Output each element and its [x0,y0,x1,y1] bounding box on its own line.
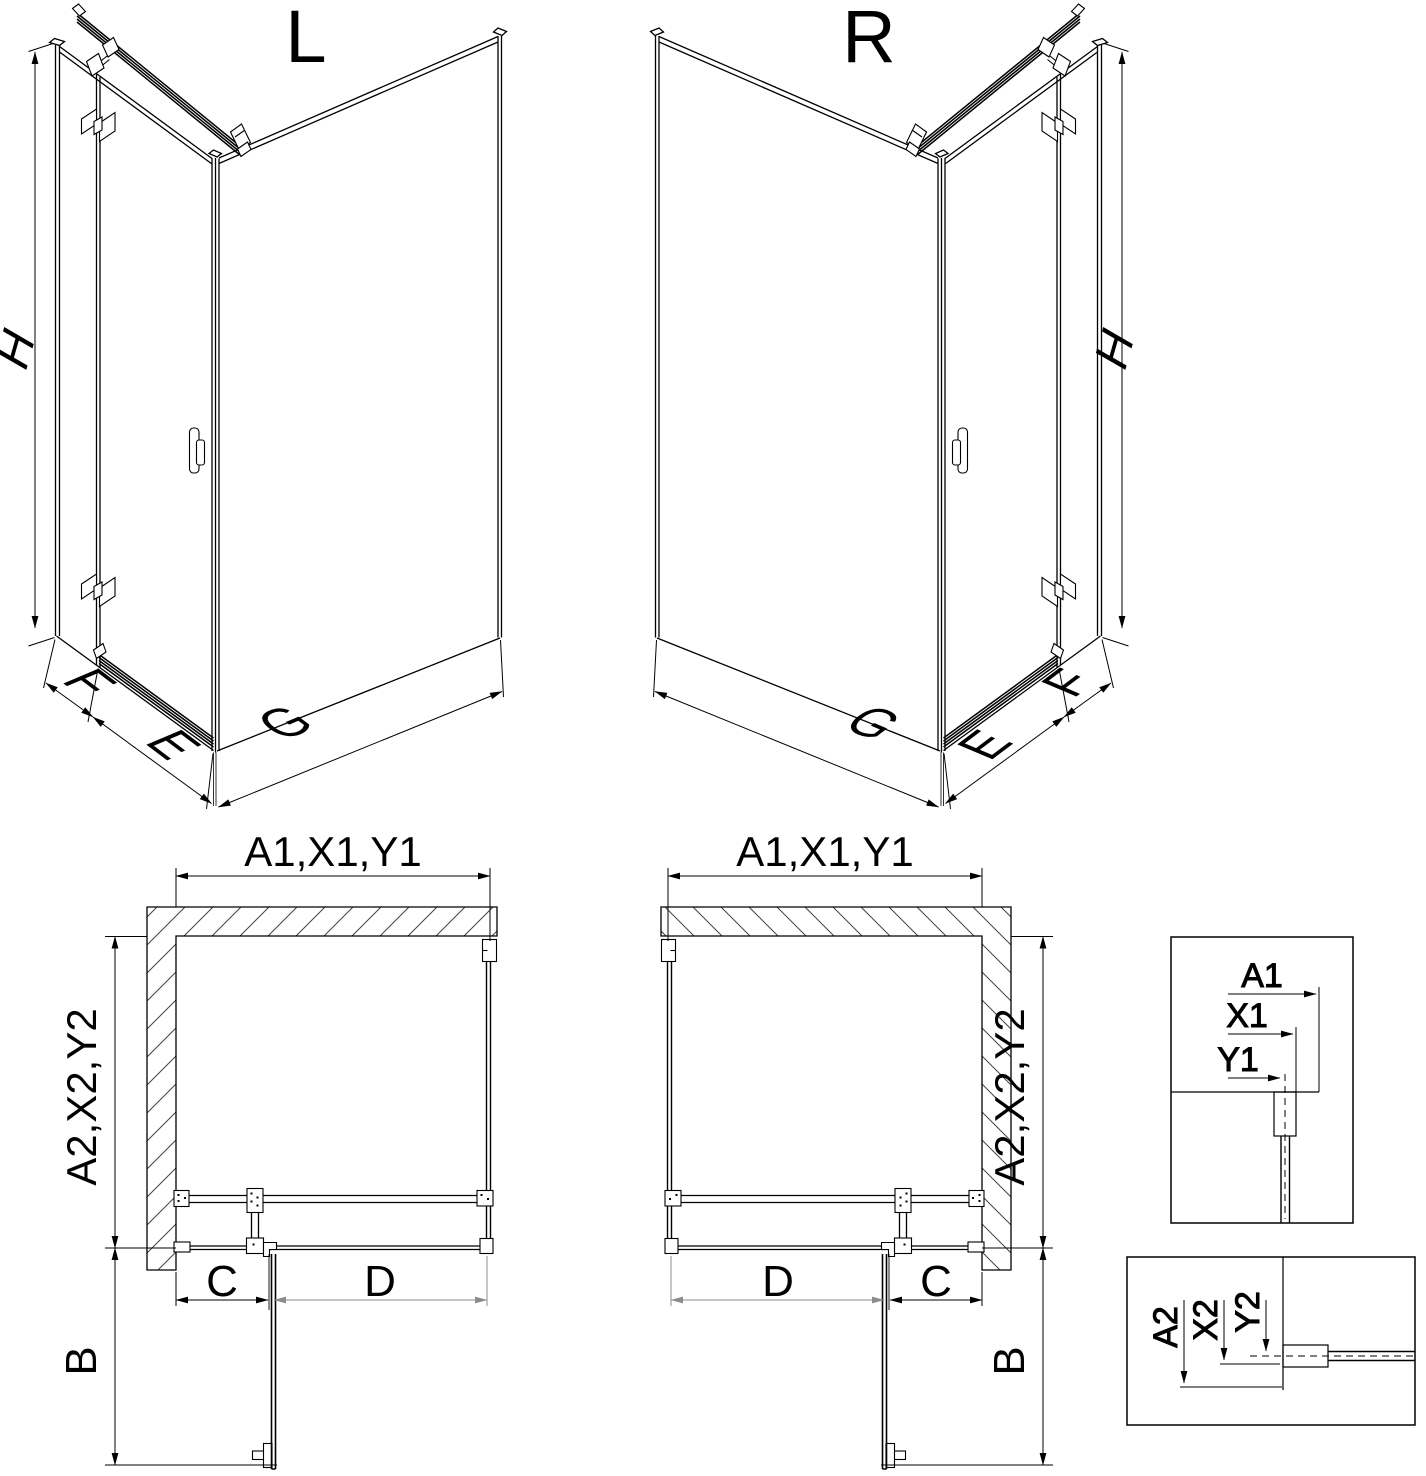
label-depth-dim-right: A2,X2,Y2 [986,1008,1033,1185]
technical-drawing: L H F E G R H G E F A1,X1,Y1 A2,X2,Y2 C … [0,0,1426,1476]
label-width-dim-left: A1,X1,Y1 [244,828,421,875]
plan-view-left: A1,X1,Y1 A2,X2,Y2 C D B [57,828,497,1469]
figure-iso-right: R H G E F [651,0,1144,809]
label-b-left: B [57,1346,106,1375]
detail-wall-profile-top: A1 X1 Y1 [1171,937,1353,1223]
label-g-right: G [831,696,915,748]
label-detail-x2: X2 [1187,1299,1225,1341]
drawing-sheet: L H F E G R H G E F A1,X1,Y1 A2,X2,Y2 C … [0,0,1426,1476]
label-d-left: D [364,1257,396,1306]
label-detail-x1: X1 [1226,997,1268,1035]
label-detail-a1: A1 [1241,957,1283,995]
label-depth-dim-left: A2,X2,Y2 [58,1008,105,1185]
label-height-left: H [0,319,44,380]
label-version-right: R [842,0,895,78]
label-c-right: C [920,1257,952,1306]
label-c-left: C [206,1257,238,1306]
label-g-left: G [243,696,327,748]
label-detail-y2: Y2 [1229,1291,1267,1333]
label-version-left: L [285,0,326,78]
label-width-dim-right: A1,X1,Y1 [736,828,913,875]
label-b-right: B [985,1346,1034,1375]
label-detail-y1: Y1 [1217,1041,1259,1079]
label-d-right: D [762,1257,794,1306]
figure-iso-left: L H F E G [0,0,507,809]
detail-wall-profile-side: A2 X2 Y2 [1127,1257,1415,1425]
label-detail-a2: A2 [1147,1306,1185,1348]
plan-view-right: A1,X1,Y1 A2,X2,Y2 D C B [661,828,1053,1469]
label-height-right: H [1086,319,1143,380]
